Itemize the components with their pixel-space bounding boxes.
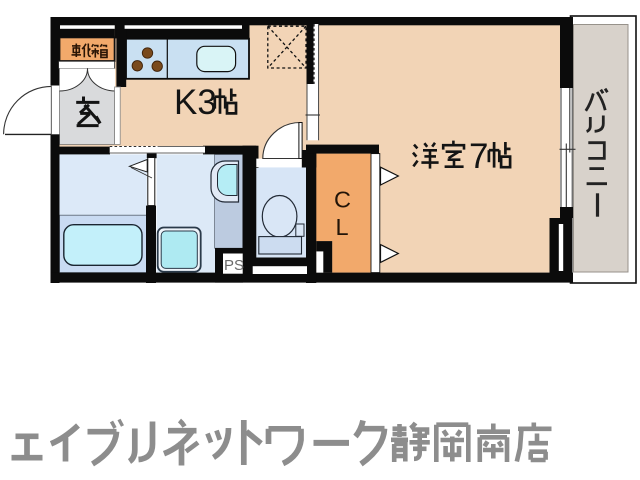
svg-text:7: 7: [469, 137, 488, 176]
svg-text:C: C: [334, 187, 351, 213]
svg-text:K3: K3: [174, 83, 217, 122]
svg-text:L: L: [336, 214, 349, 240]
svg-text:PS: PS: [224, 257, 244, 274]
